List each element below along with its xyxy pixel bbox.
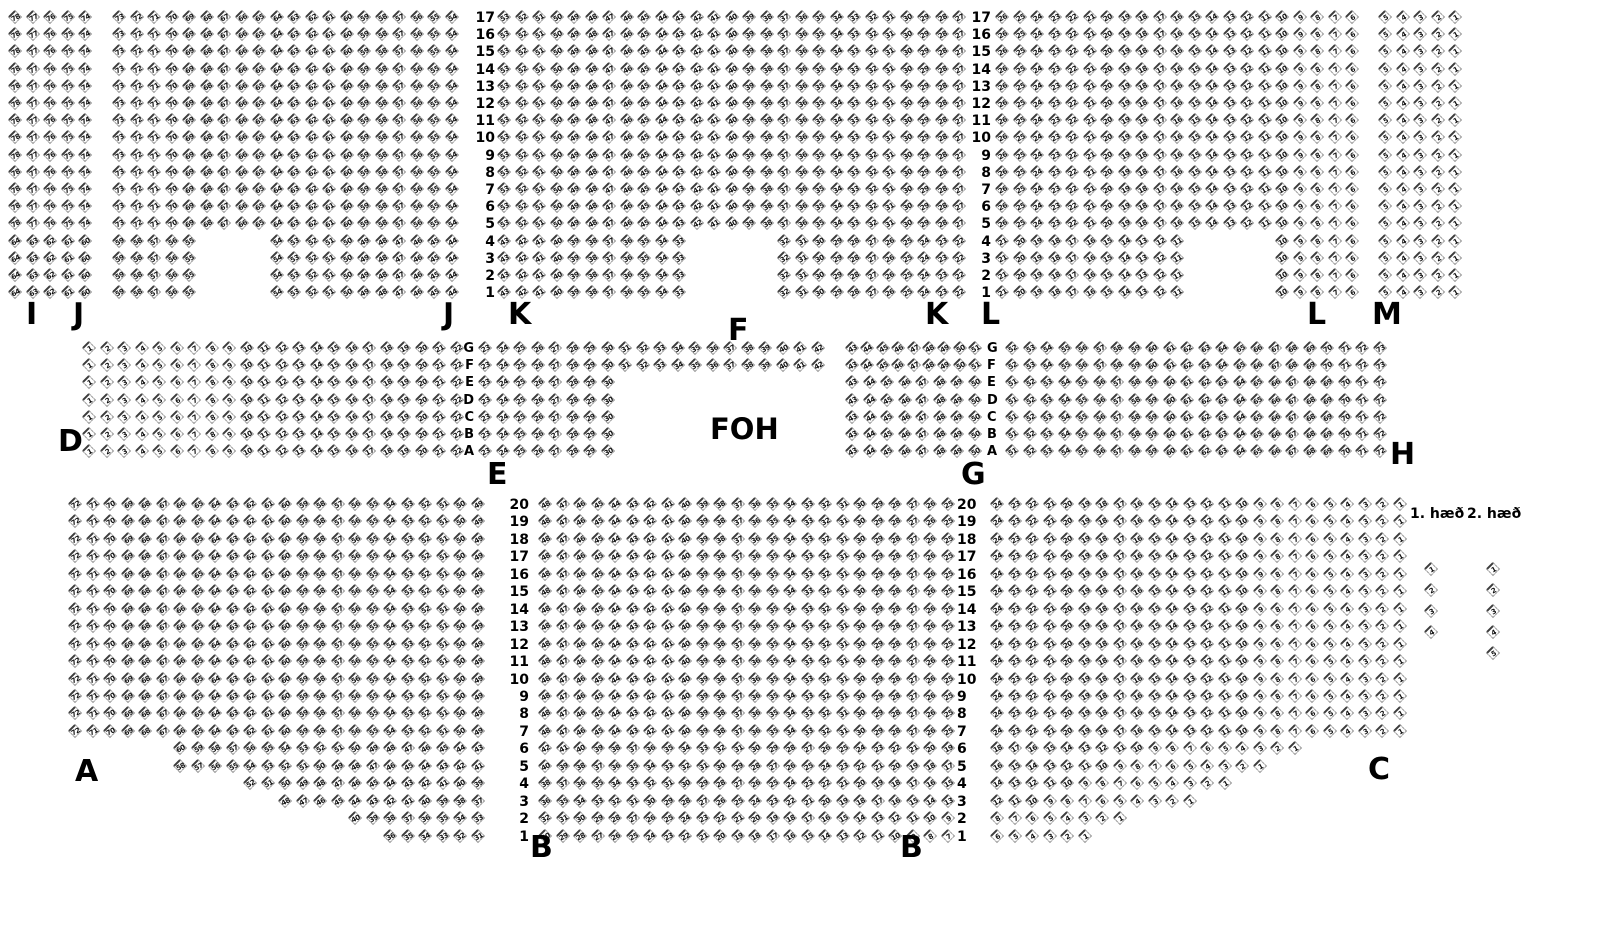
seat-H-63[interactable]: 63 — [1215, 393, 1230, 408]
seat-J-58[interactable]: 58 — [130, 251, 145, 266]
seat-B-30[interactable]: 30 — [853, 724, 868, 739]
seat-A-54[interactable]: 54 — [278, 741, 293, 756]
seat-E-27[interactable]: 27 — [548, 341, 563, 356]
seat-B-18[interactable]: 18 — [923, 759, 938, 774]
seat-F-31[interactable]: 31 — [618, 341, 633, 356]
seat-K-38[interactable]: 38 — [760, 79, 775, 94]
seat-A-57[interactable]: 57 — [331, 724, 346, 739]
seat-B-48[interactable]: 48 — [538, 584, 553, 599]
seat-A-67[interactable]: 67 — [156, 602, 171, 617]
seat-C-4[interactable]: 4 — [1340, 672, 1355, 687]
seat-C-13[interactable]: 13 — [1183, 532, 1198, 547]
seat-L-12[interactable]: 12 — [1153, 251, 1168, 266]
seat-M-4[interactable]: 4 — [1396, 113, 1411, 128]
seat-K-32[interactable]: 32 — [865, 130, 880, 145]
seat-K-31[interactable]: 31 — [882, 113, 897, 128]
seat-C-14[interactable]: 14 — [1165, 532, 1180, 547]
seat-B-26[interactable]: 26 — [923, 497, 938, 512]
seat-C-3[interactable]: 3 — [1078, 811, 1093, 826]
seat-C-11[interactable]: 11 — [1218, 672, 1233, 687]
seat-K-48[interactable]: 48 — [585, 130, 600, 145]
seat-I-78[interactable]: 78 — [8, 10, 23, 25]
seat-K-37[interactable]: 37 — [777, 27, 792, 42]
seat-B-41[interactable]: 41 — [661, 567, 676, 582]
seat-L-12[interactable]: 12 — [1153, 234, 1168, 249]
seat-H-69[interactable]: 69 — [1320, 444, 1335, 459]
seat-C-12[interactable]: 12 — [1060, 759, 1075, 774]
seat-J-56[interactable]: 56 — [165, 285, 180, 300]
seat-J-69[interactable]: 69 — [182, 96, 197, 111]
seat-C-23[interactable]: 23 — [1008, 706, 1023, 721]
seat-A-35[interactable]: 35 — [401, 829, 416, 844]
seat-E-27[interactable]: 27 — [548, 358, 563, 373]
seat-K-34[interactable]: 34 — [655, 268, 670, 283]
seat-C-17[interactable]: 17 — [1113, 619, 1128, 634]
seat-I-78[interactable]: 78 — [8, 44, 23, 59]
seat-C-21[interactable]: 21 — [1043, 619, 1058, 634]
seat-J-64[interactable]: 64 — [270, 130, 285, 145]
seat-A-67[interactable]: 67 — [156, 514, 171, 529]
seat-C-15[interactable]: 15 — [1148, 689, 1163, 704]
seat-J-73[interactable]: 73 — [112, 216, 127, 231]
seat-A-56[interactable]: 56 — [348, 584, 363, 599]
seat-L-18[interactable]: 18 — [1135, 165, 1150, 180]
seat-E-27[interactable]: 27 — [548, 393, 563, 408]
seat-B-29[interactable]: 29 — [871, 567, 886, 582]
seat-J-46[interactable]: 46 — [410, 251, 425, 266]
seat-L-25[interactable]: 25 — [1013, 44, 1028, 59]
seat-J-48[interactable]: 48 — [375, 234, 390, 249]
seat-K-36[interactable]: 36 — [795, 216, 810, 231]
seat-J-60[interactable]: 60 — [340, 216, 355, 231]
seat-H-57[interactable]: 57 — [1110, 375, 1125, 390]
seat-C-18[interactable]: 18 — [1095, 689, 1110, 704]
seat-K-27[interactable]: 27 — [952, 96, 967, 111]
seat-I-78[interactable]: 78 — [8, 113, 23, 128]
seat-A-53[interactable]: 53 — [261, 759, 276, 774]
seat-C-17[interactable]: 17 — [1113, 532, 1128, 547]
seat-D-10[interactable]: 10 — [240, 444, 255, 459]
seat-J-70[interactable]: 70 — [165, 216, 180, 231]
seat-A-53[interactable]: 53 — [401, 724, 416, 739]
seat-B-33[interactable]: 33 — [801, 619, 816, 634]
seat-J-57[interactable]: 57 — [147, 251, 162, 266]
seat-K-34[interactable]: 34 — [830, 165, 845, 180]
seat-J-61[interactable]: 61 — [322, 199, 337, 214]
seat-K-43[interactable]: 43 — [672, 27, 687, 42]
seat-K-34[interactable]: 34 — [655, 285, 670, 300]
seat-K-48[interactable]: 48 — [585, 113, 600, 128]
seat-G-46[interactable]: 46 — [898, 444, 913, 459]
seat-B-26[interactable]: 26 — [923, 567, 938, 582]
seat-C-10[interactable]: 10 — [1235, 532, 1250, 547]
seat-K-53[interactable]: 53 — [497, 62, 512, 77]
seat-A-47[interactable]: 47 — [401, 741, 416, 756]
seat-B-47[interactable]: 47 — [556, 549, 571, 564]
seat-J-48[interactable]: 48 — [375, 285, 390, 300]
seat-A-63[interactable]: 63 — [226, 654, 241, 669]
seat-A-60[interactable]: 60 — [278, 584, 293, 599]
seat-B-43[interactable]: 43 — [626, 567, 641, 582]
seat-L-8[interactable]: 8 — [1310, 44, 1325, 59]
seat-K-23[interactable]: 23 — [935, 251, 950, 266]
seat-B-44[interactable]: 44 — [608, 584, 623, 599]
seat-L-17[interactable]: 17 — [1065, 285, 1080, 300]
seat-K-45[interactable]: 45 — [637, 79, 652, 94]
seat-K-34[interactable]: 34 — [830, 62, 845, 77]
seat-K-45[interactable]: 45 — [637, 62, 652, 77]
seat-H-58[interactable]: 58 — [1128, 410, 1143, 425]
seat-L-26[interactable]: 26 — [995, 216, 1010, 231]
seat-B-31[interactable]: 31 — [836, 602, 851, 617]
seat-C-1[interactable]: 1 — [1393, 619, 1408, 634]
seat-A-70[interactable]: 70 — [103, 619, 118, 634]
seat-I-77[interactable]: 77 — [26, 130, 41, 145]
seat-A-56[interactable]: 56 — [348, 532, 363, 547]
seat-A-71[interactable]: 71 — [86, 672, 101, 687]
seat-J-55[interactable]: 55 — [427, 113, 442, 128]
seat-C-21[interactable]: 21 — [1043, 584, 1058, 599]
seat-A-52[interactable]: 52 — [418, 602, 433, 617]
seat-K-35[interactable]: 35 — [637, 251, 652, 266]
seat-D-9[interactable]: 9 — [222, 393, 237, 408]
seat-I-77[interactable]: 77 — [26, 10, 41, 25]
seat-B-40[interactable]: 40 — [678, 619, 693, 634]
seat-A-57[interactable]: 57 — [331, 584, 346, 599]
seat-J-62[interactable]: 62 — [305, 96, 320, 111]
seat-K-44[interactable]: 44 — [655, 182, 670, 197]
seat-K-49[interactable]: 49 — [567, 113, 582, 128]
seat-B-48[interactable]: 48 — [538, 567, 553, 582]
seat-I-77[interactable]: 77 — [26, 62, 41, 77]
seat-K-52[interactable]: 52 — [515, 10, 530, 25]
seat-H-69[interactable]: 69 — [1320, 393, 1335, 408]
seat-A-59[interactable]: 59 — [296, 584, 311, 599]
seat-K-43[interactable]: 43 — [497, 251, 512, 266]
seat-L-26[interactable]: 26 — [995, 130, 1010, 145]
seat-B-29[interactable]: 29 — [871, 619, 886, 634]
seat-D-8[interactable]: 8 — [205, 393, 220, 408]
seat-B-30[interactable]: 30 — [713, 759, 728, 774]
seat-I-76[interactable]: 76 — [43, 62, 58, 77]
seat-A-67[interactable]: 67 — [156, 724, 171, 739]
seat-D-2[interactable]: 2 — [100, 444, 115, 459]
seat-B-27[interactable]: 27 — [626, 811, 641, 826]
seat-K-32[interactable]: 32 — [865, 79, 880, 94]
seat-L-7[interactable]: 7 — [1328, 148, 1343, 163]
seat-B-38[interactable]: 38 — [713, 724, 728, 739]
seat-A-39[interactable]: 39 — [471, 776, 486, 791]
seat-A-50[interactable]: 50 — [453, 724, 468, 739]
seat-L-7[interactable]: 7 — [1328, 199, 1343, 214]
seat-B-35[interactable]: 35 — [766, 637, 781, 652]
seat-L-16[interactable]: 16 — [1170, 113, 1185, 128]
seat-K-50[interactable]: 50 — [550, 44, 565, 59]
seat-H-62[interactable]: 62 — [1198, 427, 1213, 442]
seat-B-24[interactable]: 24 — [748, 794, 763, 809]
seat-L-18[interactable]: 18 — [1135, 216, 1150, 231]
seat-B-37[interactable]: 37 — [731, 654, 746, 669]
seat-J-60[interactable]: 60 — [340, 62, 355, 77]
seat-L-8[interactable]: 8 — [1310, 130, 1325, 145]
seat-B-46[interactable]: 46 — [573, 602, 588, 617]
seat-D-9[interactable]: 9 — [222, 427, 237, 442]
seat-C-13[interactable]: 13 — [1183, 654, 1198, 669]
seat-J-57[interactable]: 57 — [147, 234, 162, 249]
seat-D-7[interactable]: 7 — [187, 393, 202, 408]
seat-C-12[interactable]: 12 — [1200, 567, 1215, 582]
seat-B-31[interactable]: 31 — [836, 689, 851, 704]
seat-C-23[interactable]: 23 — [1008, 497, 1023, 512]
seat-A-51[interactable]: 51 — [436, 497, 451, 512]
seat-L-13[interactable]: 13 — [1135, 251, 1150, 266]
seat-D-13[interactable]: 13 — [292, 375, 307, 390]
seat-C-24[interactable]: 24 — [990, 689, 1005, 704]
seat-C-16[interactable]: 16 — [1130, 497, 1145, 512]
seat-K-33[interactable]: 33 — [847, 10, 862, 25]
seat-L-6[interactable]: 6 — [1345, 182, 1360, 197]
seat-A-72[interactable]: 72 — [68, 724, 83, 739]
seat-J-66[interactable]: 66 — [235, 216, 250, 231]
seat-J-49[interactable]: 49 — [357, 251, 372, 266]
seat-K-53[interactable]: 53 — [497, 130, 512, 145]
seat-A-68[interactable]: 68 — [138, 637, 153, 652]
seat-A-59[interactable]: 59 — [296, 602, 311, 617]
seat-L-8[interactable]: 8 — [1310, 96, 1325, 111]
seat-J-59[interactable]: 59 — [112, 251, 127, 266]
seat-K-36[interactable]: 36 — [620, 268, 635, 283]
seat-L-20[interactable]: 20 — [1100, 182, 1115, 197]
seat-B-37[interactable]: 37 — [731, 724, 746, 739]
seat-J-55[interactable]: 55 — [427, 62, 442, 77]
seat-J-45[interactable]: 45 — [427, 251, 442, 266]
seat-C-22[interactable]: 22 — [1025, 514, 1040, 529]
seat-L-8[interactable]: 8 — [1310, 234, 1325, 249]
seat-C-11[interactable]: 11 — [1043, 776, 1058, 791]
seat-B-33[interactable]: 33 — [801, 689, 816, 704]
seat-K-39[interactable]: 39 — [742, 44, 757, 59]
seat-L-21[interactable]: 21 — [1083, 79, 1098, 94]
seat-L-6[interactable]: 6 — [1345, 27, 1360, 42]
seat-C-4[interactable]: 4 — [1340, 532, 1355, 547]
seat-A-54[interactable]: 54 — [383, 497, 398, 512]
seat-A-69[interactable]: 69 — [121, 689, 136, 704]
seat-A-52[interactable]: 52 — [418, 654, 433, 669]
seat-C-13[interactable]: 13 — [1183, 724, 1198, 739]
seat-K-35[interactable]: 35 — [812, 199, 827, 214]
seat-C-14[interactable]: 14 — [990, 776, 1005, 791]
seat-M-3[interactable]: 3 — [1413, 234, 1428, 249]
seat-A-72[interactable]: 72 — [68, 532, 83, 547]
seat-C-20[interactable]: 20 — [1060, 567, 1075, 582]
seat-B-41[interactable]: 41 — [661, 584, 676, 599]
seat-A-38[interactable]: 38 — [383, 811, 398, 826]
seat-B-19[interactable]: 19 — [871, 776, 886, 791]
seat-J-68[interactable]: 68 — [200, 148, 215, 163]
seat-K-42[interactable]: 42 — [690, 79, 705, 94]
seat-I-75[interactable]: 75 — [61, 44, 76, 59]
seat-A-69[interactable]: 69 — [121, 549, 136, 564]
seat-J-58[interactable]: 58 — [375, 165, 390, 180]
seat-I-77[interactable]: 77 — [26, 44, 41, 59]
seat-J-50[interactable]: 50 — [340, 285, 355, 300]
seat-C-16[interactable]: 16 — [1130, 567, 1145, 582]
seat-J-68[interactable]: 68 — [200, 165, 215, 180]
seat-L-7[interactable]: 7 — [1328, 165, 1343, 180]
seat-H-58[interactable]: 58 — [1110, 358, 1125, 373]
seat-L-7[interactable]: 7 — [1328, 285, 1343, 300]
seat-B-43[interactable]: 43 — [626, 637, 641, 652]
seat-L-18[interactable]: 18 — [1135, 148, 1150, 163]
seat-M-5[interactable]: 5 — [1378, 268, 1393, 283]
seat-H-67[interactable]: 67 — [1285, 375, 1300, 390]
seat-L-13[interactable]: 13 — [1223, 10, 1238, 25]
seat-J-57[interactable]: 57 — [392, 96, 407, 111]
seat-J-61[interactable]: 61 — [322, 96, 337, 111]
seat-A-52[interactable]: 52 — [418, 689, 433, 704]
seat-L-14[interactable]: 14 — [1205, 44, 1220, 59]
seat-J-56[interactable]: 56 — [410, 216, 425, 231]
seat-K-33[interactable]: 33 — [847, 165, 862, 180]
seat-D-19[interactable]: 19 — [397, 410, 412, 425]
seat-D-21[interactable]: 21 — [432, 393, 447, 408]
seat-K-50[interactable]: 50 — [550, 165, 565, 180]
seat-A-62[interactable]: 62 — [243, 532, 258, 547]
seat-A-66[interactable]: 66 — [173, 532, 188, 547]
seat-C-13[interactable]: 13 — [1183, 619, 1198, 634]
seat-G-45[interactable]: 45 — [880, 410, 895, 425]
seat-B-39[interactable]: 39 — [696, 584, 711, 599]
seat-H-70[interactable]: 70 — [1338, 410, 1353, 425]
seat-L-24[interactable]: 24 — [1030, 165, 1045, 180]
seat-D-20[interactable]: 20 — [415, 341, 430, 356]
seat-B-25[interactable]: 25 — [941, 514, 956, 529]
seat-M-4[interactable]: 4 — [1396, 62, 1411, 77]
seat-H-59[interactable]: 59 — [1145, 427, 1160, 442]
seat-C-12[interactable]: 12 — [1200, 689, 1215, 704]
seat-K-43[interactable]: 43 — [672, 44, 687, 59]
seat-K-28[interactable]: 28 — [847, 285, 862, 300]
seat-D-21[interactable]: 21 — [432, 444, 447, 459]
seat-floor1-4[interactable]: 4 — [1424, 625, 1439, 640]
seat-L-25[interactable]: 25 — [1013, 199, 1028, 214]
seat-C-4[interactable]: 4 — [1235, 741, 1250, 756]
seat-M-4[interactable]: 4 — [1396, 44, 1411, 59]
seat-D-22[interactable]: 22 — [450, 444, 465, 459]
seat-J-63[interactable]: 63 — [287, 62, 302, 77]
seat-A-56[interactable]: 56 — [348, 689, 363, 704]
seat-C-18[interactable]: 18 — [1095, 724, 1110, 739]
seat-B-34[interactable]: 34 — [783, 654, 798, 669]
seat-B-19[interactable]: 19 — [766, 811, 781, 826]
seat-H-65[interactable]: 65 — [1233, 341, 1248, 356]
seat-K-31[interactable]: 31 — [882, 130, 897, 145]
seat-C-16[interactable]: 16 — [1130, 584, 1145, 599]
seat-A-71[interactable]: 71 — [86, 602, 101, 617]
seat-C-19[interactable]: 19 — [1078, 689, 1093, 704]
seat-D-13[interactable]: 13 — [292, 444, 307, 459]
seat-K-25[interactable]: 25 — [900, 268, 915, 283]
seat-B-25[interactable]: 25 — [941, 497, 956, 512]
seat-C-7[interactable]: 7 — [1288, 532, 1303, 547]
seat-B-26[interactable]: 26 — [923, 619, 938, 634]
seat-L-17[interactable]: 17 — [1153, 165, 1168, 180]
seat-B-30[interactable]: 30 — [853, 567, 868, 582]
seat-A-52[interactable]: 52 — [418, 637, 433, 652]
seat-C-21[interactable]: 21 — [1043, 724, 1058, 739]
seat-C-16[interactable]: 16 — [1130, 706, 1145, 721]
seat-L-18[interactable]: 18 — [1135, 27, 1150, 42]
seat-B-31[interactable]: 31 — [836, 654, 851, 669]
seat-M-5[interactable]: 5 — [1378, 62, 1393, 77]
seat-B-40[interactable]: 40 — [678, 602, 693, 617]
seat-C-5[interactable]: 5 — [1323, 689, 1338, 704]
seat-B-25[interactable]: 25 — [941, 584, 956, 599]
seat-E-28[interactable]: 28 — [566, 393, 581, 408]
seat-B-37[interactable]: 37 — [731, 637, 746, 652]
seat-B-26[interactable]: 26 — [608, 829, 623, 844]
seat-H-58[interactable]: 58 — [1128, 427, 1143, 442]
seat-M-3[interactable]: 3 — [1413, 148, 1428, 163]
seat-K-49[interactable]: 49 — [567, 10, 582, 25]
seat-A-64[interactable]: 64 — [208, 532, 223, 547]
seat-L-6[interactable]: 6 — [1345, 10, 1360, 25]
seat-B-41[interactable]: 41 — [661, 672, 676, 687]
seat-B-47[interactable]: 47 — [556, 532, 571, 547]
seat-L-14[interactable]: 14 — [1205, 96, 1220, 111]
seat-G-45[interactable]: 45 — [876, 341, 891, 356]
seat-I-78[interactable]: 78 — [8, 165, 23, 180]
seat-C-4[interactable]: 4 — [1340, 654, 1355, 669]
seat-C-21[interactable]: 21 — [1043, 514, 1058, 529]
seat-H-51[interactable]: 51 — [1005, 410, 1020, 425]
seat-K-44[interactable]: 44 — [655, 44, 670, 59]
seat-E-30[interactable]: 30 — [601, 427, 616, 442]
seat-C-16[interactable]: 16 — [1130, 602, 1145, 617]
seat-H-62[interactable]: 62 — [1198, 410, 1213, 425]
seat-M-2[interactable]: 2 — [1431, 165, 1446, 180]
seat-H-58[interactable]: 58 — [1128, 375, 1143, 390]
seat-B-40[interactable]: 40 — [678, 654, 693, 669]
seat-J-71[interactable]: 71 — [147, 165, 162, 180]
seat-J-67[interactable]: 67 — [217, 96, 232, 111]
seat-H-71[interactable]: 71 — [1338, 341, 1353, 356]
seat-A-40[interactable]: 40 — [348, 811, 363, 826]
seat-B-26[interactable]: 26 — [748, 776, 763, 791]
seat-H-60[interactable]: 60 — [1145, 341, 1160, 356]
seat-F-31[interactable]: 31 — [618, 358, 633, 373]
seat-B-33[interactable]: 33 — [626, 776, 641, 791]
seat-K-39[interactable]: 39 — [567, 268, 582, 283]
seat-K-39[interactable]: 39 — [742, 148, 757, 163]
seat-J-64[interactable]: 64 — [270, 182, 285, 197]
seat-K-51[interactable]: 51 — [532, 182, 547, 197]
seat-C-9[interactable]: 9 — [1043, 794, 1058, 809]
seat-L-16[interactable]: 16 — [1170, 10, 1185, 25]
seat-C-3[interactable]: 3 — [1358, 689, 1373, 704]
seat-K-32[interactable]: 32 — [865, 62, 880, 77]
seat-D-6[interactable]: 6 — [170, 410, 185, 425]
seat-K-25[interactable]: 25 — [900, 285, 915, 300]
seat-L-12[interactable]: 12 — [1240, 96, 1255, 111]
seat-H-53[interactable]: 53 — [1040, 427, 1055, 442]
seat-M-1[interactable]: 1 — [1448, 268, 1463, 283]
seat-B-46[interactable]: 46 — [573, 724, 588, 739]
seat-A-53[interactable]: 53 — [401, 514, 416, 529]
seat-H-51[interactable]: 51 — [1005, 393, 1020, 408]
seat-K-41[interactable]: 41 — [707, 165, 722, 180]
seat-M-4[interactable]: 4 — [1396, 165, 1411, 180]
